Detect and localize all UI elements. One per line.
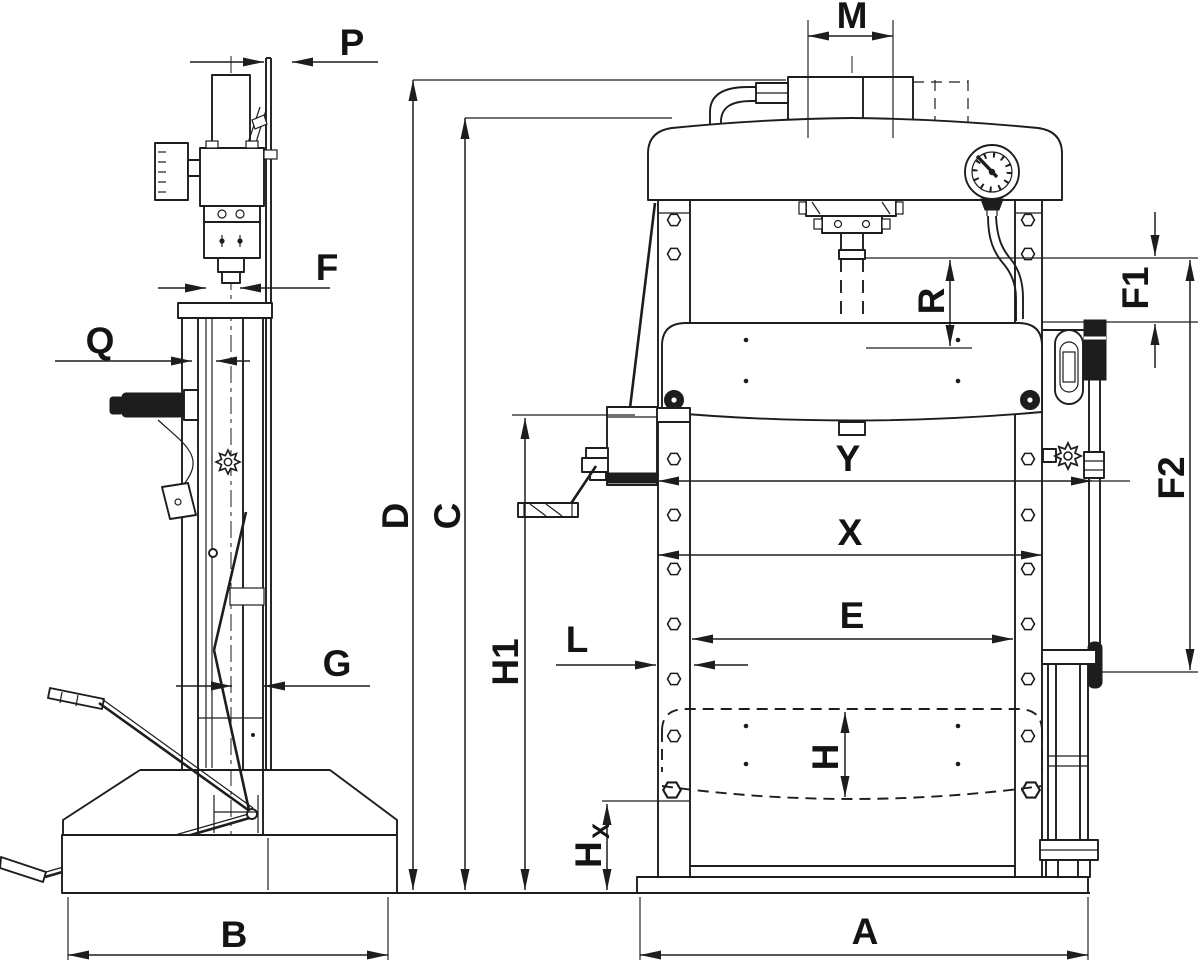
side-release-knob bbox=[216, 450, 240, 474]
pump-cylinder-cap bbox=[1084, 320, 1106, 380]
upper-table bbox=[662, 323, 1042, 421]
dim-label-H1: H1 bbox=[485, 638, 526, 685]
drawing-page: P M F Q G B A Y X E L D C H1 R F1 F2 H H… bbox=[0, 0, 1200, 962]
dim-D bbox=[413, 80, 786, 890]
dim-label-F1: F1 bbox=[1115, 266, 1156, 309]
dim-label-Q: Q bbox=[86, 320, 115, 361]
press-dimensional-drawing: P M F Q G B A Y X E L D C H1 R F1 F2 H H… bbox=[0, 0, 1200, 962]
dim-label-Hx-main: H bbox=[568, 841, 609, 868]
dim-label-Y: Y bbox=[836, 438, 861, 479]
dim-label-E: E bbox=[840, 595, 865, 636]
dim-label-A: A bbox=[852, 911, 879, 952]
pressure-gauge bbox=[965, 145, 1019, 216]
column-bolt-holes bbox=[663, 214, 1040, 797]
dim-label-B: B bbox=[221, 914, 248, 955]
side-ram-nose bbox=[218, 258, 244, 283]
side-frame-column bbox=[178, 303, 272, 835]
hand-pump-assembly bbox=[1040, 320, 1106, 877]
dim-label-H: H bbox=[805, 744, 846, 771]
dim-label-Hx: H X bbox=[568, 823, 615, 868]
dim-label-R: R bbox=[911, 288, 952, 315]
dim-label-M: M bbox=[837, 0, 868, 36]
dim-label-Hx-sub: X bbox=[588, 823, 615, 839]
gauge-hose bbox=[988, 216, 1023, 321]
release-valve-knob bbox=[1043, 443, 1081, 469]
dim-label-D: D bbox=[375, 503, 416, 530]
dim-label-F: F bbox=[316, 247, 339, 288]
front-base bbox=[637, 866, 1088, 893]
dim-label-X: X bbox=[838, 512, 863, 553]
dim-label-L: L bbox=[566, 619, 589, 660]
dim-label-F2: F2 bbox=[1151, 456, 1192, 499]
side-pressure-gauge bbox=[155, 143, 202, 200]
winch-cable bbox=[630, 203, 655, 408]
winch-crank-handle bbox=[518, 503, 578, 517]
side-lever-plate bbox=[162, 483, 196, 519]
side-base bbox=[62, 770, 397, 893]
dim-label-P: P bbox=[340, 22, 365, 63]
lower-table-dashed bbox=[662, 709, 1042, 799]
dim-label-G: G bbox=[323, 643, 352, 684]
side-pump-handle-socket bbox=[110, 390, 198, 420]
table-winch bbox=[518, 407, 690, 517]
side-view bbox=[0, 56, 397, 893]
side-guide-plate bbox=[266, 58, 271, 770]
dim-label-C: C bbox=[427, 503, 468, 530]
pump-lever bbox=[1084, 380, 1104, 688]
